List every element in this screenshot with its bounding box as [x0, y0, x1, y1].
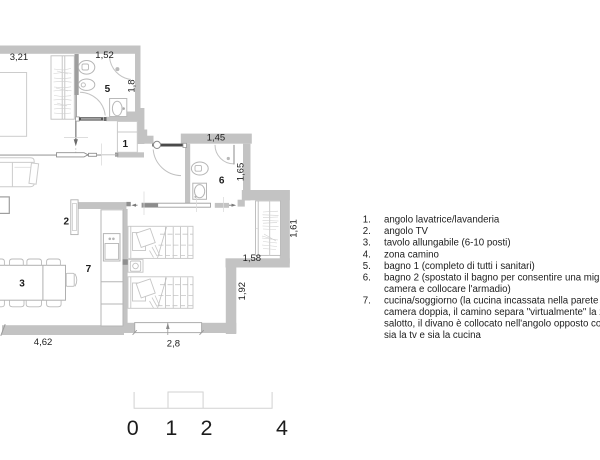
svg-text:camera doppia, il camino separ: camera doppia, il camino separa "virtual… — [384, 307, 600, 318]
svg-text:1: 1 — [123, 139, 129, 150]
svg-text:6.: 6. — [363, 272, 371, 283]
svg-text:3.: 3. — [363, 238, 371, 249]
svg-text:angolo lavatrice/lavanderia: angolo lavatrice/lavanderia — [384, 215, 500, 226]
svg-text:bagno 2 (spostato il bagno per: bagno 2 (spostato il bagno per consentir… — [384, 272, 600, 283]
svg-text:5: 5 — [105, 84, 111, 95]
svg-text:sia la tv e sia la cucina: sia la tv e sia la cucina — [384, 330, 482, 341]
svg-text:7.: 7. — [363, 296, 371, 307]
svg-text:1,52: 1,52 — [95, 50, 114, 61]
svg-text:4.: 4. — [363, 249, 371, 260]
svg-text:1.: 1. — [363, 215, 371, 226]
svg-text:7: 7 — [86, 264, 92, 275]
svg-text:1,65: 1,65 — [235, 163, 246, 182]
svg-text:tavolo allungabile (6-10 posti: tavolo allungabile (6-10 posti) — [384, 238, 511, 249]
svg-text:5.: 5. — [363, 261, 371, 272]
svg-text:1,45: 1,45 — [207, 133, 226, 144]
svg-text:2: 2 — [201, 416, 213, 440]
svg-text:0: 0 — [127, 416, 139, 440]
svg-text:salotto, il divano è collocato: salotto, il divano è collocato nell'ango… — [384, 319, 600, 330]
svg-text:camera e collocare l'armadio): camera e collocare l'armadio) — [384, 284, 511, 295]
svg-text:angolo TV: angolo TV — [384, 226, 429, 237]
svg-text:3,21: 3,21 — [10, 52, 29, 63]
svg-text:1: 1 — [165, 416, 177, 440]
svg-text:4,62: 4,62 — [34, 337, 53, 348]
svg-text:2.: 2. — [363, 226, 371, 237]
svg-text:1,92: 1,92 — [237, 282, 248, 301]
svg-text:4: 4 — [276, 416, 288, 440]
svg-text:zona camino: zona camino — [384, 249, 439, 260]
svg-text:1,61: 1,61 — [289, 219, 300, 238]
svg-text:1,8: 1,8 — [126, 79, 137, 92]
svg-text:1,58: 1,58 — [243, 253, 262, 264]
svg-text:2: 2 — [64, 216, 70, 227]
svg-text:cucina/soggiorno (la cucina in: cucina/soggiorno (la cucina incassata ne… — [384, 296, 600, 307]
svg-text:bagno 1 (completo di tutti i s: bagno 1 (completo di tutti i sanitari) — [384, 261, 535, 272]
svg-text:3: 3 — [19, 278, 25, 289]
svg-text:6: 6 — [219, 176, 225, 187]
svg-text:2,8: 2,8 — [167, 338, 180, 349]
